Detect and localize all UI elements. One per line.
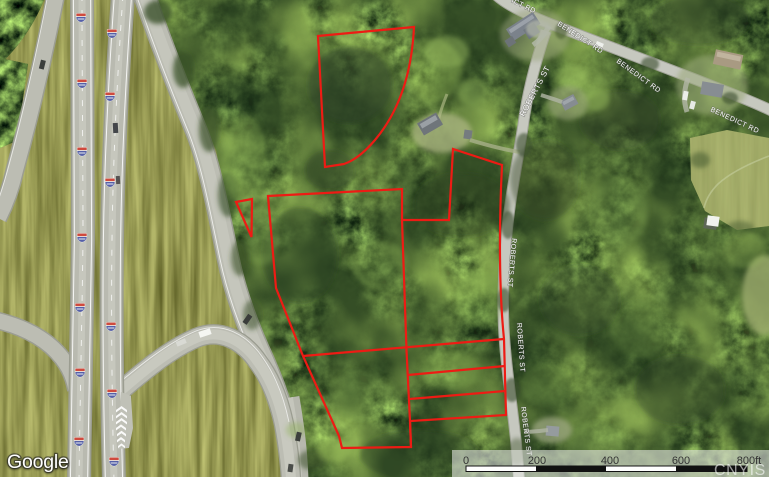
- svg-text:Google: Google: [7, 451, 69, 473]
- svg-text:CNYIS: CNYIS: [714, 462, 766, 477]
- svg-text:200: 200: [528, 455, 546, 467]
- svg-text:0: 0: [463, 455, 469, 467]
- svg-text:600: 600: [672, 455, 690, 467]
- svg-text:400: 400: [601, 455, 619, 467]
